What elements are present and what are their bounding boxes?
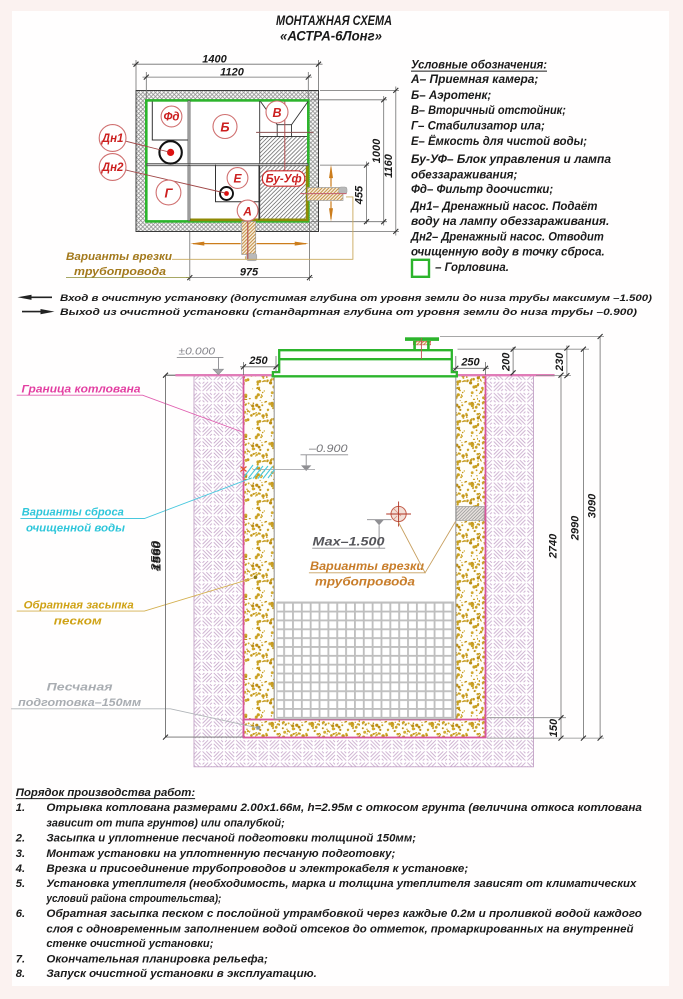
svg-text:воду на лампу обеззараживания.: воду на лампу обеззараживания. bbox=[411, 214, 609, 228]
svg-text:Бу-УФ– Блок управления и лампа: Бу-УФ– Блок управления и лампа bbox=[411, 152, 611, 166]
svg-text:стенке очистной установки;: стенке очистной установки; bbox=[46, 938, 213, 950]
svg-text:Вход в очистную установку (доп: Вход в очистную установку (допустимая гл… bbox=[60, 293, 652, 303]
svg-text:Дн1: Дн1 bbox=[101, 133, 124, 145]
svg-text:Бу-Уф: Бу-Уф bbox=[266, 174, 302, 186]
svg-text:Песчаная: Песчаная bbox=[47, 681, 114, 693]
svg-text:Порядок производства работ:: Порядок производства работ: bbox=[16, 787, 196, 799]
svg-text:Запуск очистной установки в эк: Запуск очистной установки в эксплуатацию… bbox=[46, 968, 316, 980]
svg-text:230: 230 bbox=[554, 352, 566, 372]
svg-text:Врезка и присоединение трубопр: Врезка и присоединение трубопроводов и э… bbox=[46, 863, 468, 875]
svg-text:3.: 3. bbox=[16, 848, 25, 860]
svg-text:Варианты врезки: Варианты врезки bbox=[310, 561, 424, 573]
svg-text:зависит от типа грунтов) или о: зависит от типа грунтов) или опалубкой; bbox=[46, 817, 285, 829]
svg-text:Мах–1.500: Мах–1.500 bbox=[313, 536, 386, 548]
svg-text:455: 455 bbox=[353, 185, 365, 205]
svg-text:6.: 6. bbox=[16, 908, 25, 920]
svg-text:8.: 8. bbox=[16, 968, 25, 980]
svg-text:4.: 4. bbox=[15, 863, 25, 875]
svg-text:2560: 2560 bbox=[150, 540, 162, 572]
svg-text:Фд– Фильтр доочистки;: Фд– Фильтр доочистки; bbox=[411, 182, 553, 196]
svg-text:Дн2: Дн2 bbox=[101, 162, 124, 174]
svg-text:Варианты врезки: Варианты врезки bbox=[66, 251, 172, 263]
svg-text:условий района строительства);: условий района строительства); bbox=[46, 893, 222, 905]
svg-text:Граница котлована: Граница котлована bbox=[22, 383, 141, 395]
svg-text:А: А bbox=[242, 204, 252, 218]
svg-text:Отрывка котлована размерами 2.: Отрывка котлована размерами 2.00х1.66м, … bbox=[46, 802, 641, 814]
svg-text:МОНТАЖНАЯ СХЕМА: МОНТАЖНАЯ СХЕМА bbox=[276, 13, 392, 28]
svg-text:Б: Б bbox=[220, 120, 229, 135]
svg-text:Варианты сброса: Варианты сброса bbox=[22, 507, 124, 519]
svg-text:В– Вторичный отстойник;: В– Вторичный отстойник; bbox=[411, 103, 566, 117]
svg-text:– Горловина.: – Горловина. bbox=[435, 260, 509, 274]
svg-text:Обратная засыпка песком с посл: Обратная засыпка песком с послойной утра… bbox=[46, 908, 642, 920]
svg-text:3090: 3090 bbox=[586, 493, 598, 518]
svg-text:трубопровода: трубопровода bbox=[74, 266, 166, 278]
svg-text:–0.900: –0.900 bbox=[308, 443, 349, 455]
svg-text:трубопровода: трубопровода bbox=[315, 576, 416, 588]
svg-text:975: 975 bbox=[240, 266, 259, 278]
svg-text:Е– Ёмкость для чистой воды;: Е– Ёмкость для чистой воды; bbox=[411, 133, 587, 148]
svg-text:Дн2– Дренажный насос. Отводит: Дн2– Дренажный насос. Отводит bbox=[410, 230, 604, 244]
svg-text:Г: Г bbox=[165, 186, 174, 201]
svg-text:7.: 7. bbox=[16, 953, 25, 965]
svg-text:В: В bbox=[272, 106, 281, 120]
svg-text:Фд: Фд bbox=[163, 112, 179, 124]
svg-text:2990: 2990 bbox=[570, 515, 582, 541]
svg-text:песком: песком bbox=[54, 615, 102, 627]
svg-text:2.: 2. bbox=[15, 833, 25, 845]
svg-text:5.: 5. bbox=[16, 878, 25, 890]
svg-text:1160: 1160 bbox=[383, 153, 395, 178]
svg-text:250: 250 bbox=[248, 355, 268, 367]
svg-text:Б– Аэротенк;: Б– Аэротенк; bbox=[411, 88, 491, 102]
svg-text:обеззараживания;: обеззараживания; bbox=[411, 167, 517, 181]
svg-text:А– Приемная камера;: А– Приемная камера; bbox=[410, 72, 538, 86]
svg-text:подготовка–150мм: подготовка–150мм bbox=[18, 697, 141, 709]
svg-text:2740: 2740 bbox=[547, 533, 559, 559]
svg-text:1400: 1400 bbox=[202, 54, 227, 66]
svg-text:Обратная засыпка: Обратная засыпка bbox=[24, 600, 134, 612]
svg-text:Засыпка и уплотнение песчаной: Засыпка и уплотнение песчаной подготовки… bbox=[46, 833, 416, 845]
svg-text:±0.000: ±0.000 bbox=[179, 345, 216, 357]
svg-text:Окончательная планировка релье: Окончательная планировка рельефа; bbox=[46, 953, 268, 965]
svg-text:Е: Е bbox=[233, 172, 242, 186]
svg-text:Г– Стабилизатор ила;: Г– Стабилизатор ила; bbox=[411, 119, 545, 133]
svg-text:200: 200 bbox=[500, 352, 512, 372]
svg-text:1.: 1. bbox=[16, 802, 25, 814]
svg-text:слоя с одновременным заполнени: слоя с одновременным заполнением водой о… bbox=[46, 923, 633, 935]
svg-text:Дн1– Дренажный насос. Подаёт: Дн1– Дренажный насос. Подаёт bbox=[410, 199, 598, 213]
svg-text:Установка утеплителя (необходи: Установка утеплителя (необходимость, мар… bbox=[46, 878, 637, 890]
svg-text:«АСТРА-6Лонг»: «АСТРА-6Лонг» bbox=[280, 29, 382, 44]
svg-text:Выход из очистной установки (с: Выход из очистной установки (стандартная… bbox=[60, 307, 637, 317]
svg-text:очищенной воды: очищенной воды bbox=[26, 522, 126, 534]
svg-text:150: 150 bbox=[548, 718, 560, 737]
svg-text:1000: 1000 bbox=[371, 138, 383, 163]
svg-text:очищенную воду в точку сброса.: очищенную воду в точку сброса. bbox=[411, 245, 605, 259]
svg-text:Монтаж установки на уплотненну: Монтаж установки на уплотненную песчаную… bbox=[46, 848, 395, 860]
svg-text:250: 250 bbox=[460, 357, 480, 369]
svg-text:1120: 1120 bbox=[220, 66, 245, 78]
svg-text:Условные обозначения:: Условные обозначения: bbox=[411, 57, 547, 71]
